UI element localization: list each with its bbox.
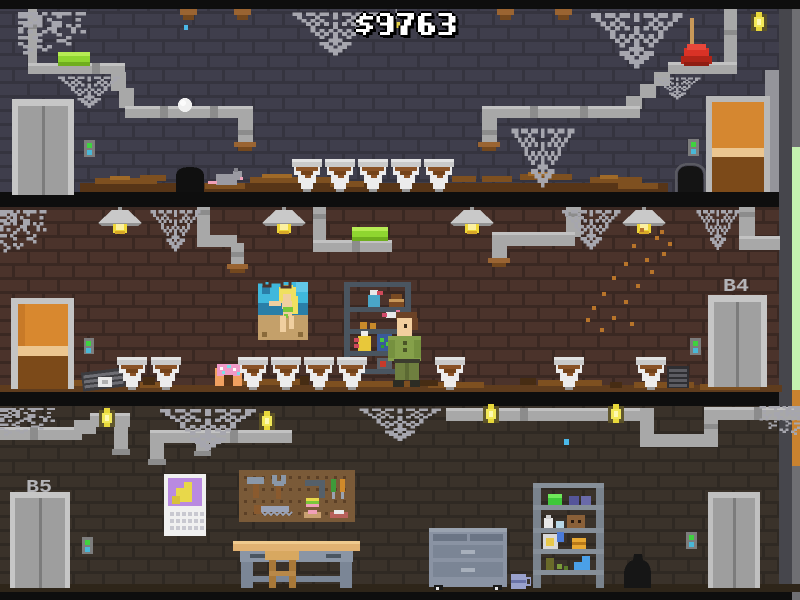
svg-text:B4: B4 [723,277,749,297]
